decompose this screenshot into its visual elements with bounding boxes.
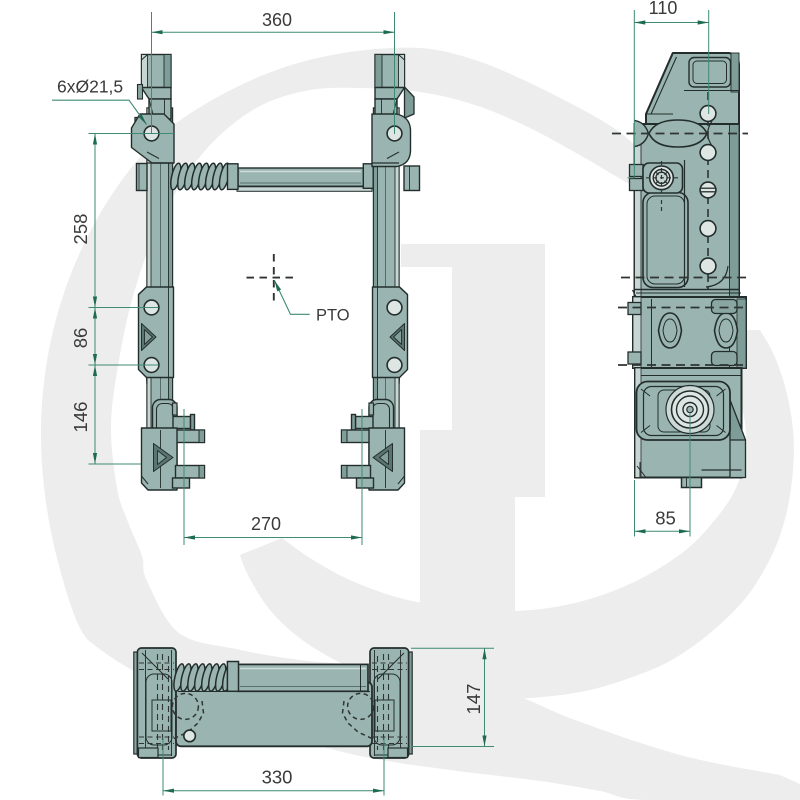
svg-text:85: 85	[655, 508, 676, 529]
svg-text:86: 86	[70, 328, 91, 349]
svg-text:330: 330	[262, 767, 293, 788]
svg-text:360: 360	[262, 10, 292, 30]
svg-text:110: 110	[649, 0, 678, 18]
svg-text:PTO: PTO	[316, 307, 350, 325]
svg-text:270: 270	[251, 514, 281, 534]
svg-text:146: 146	[70, 402, 91, 433]
svg-text:147: 147	[463, 684, 484, 715]
svg-text:258: 258	[70, 214, 91, 245]
svg-text:6xØ21,5: 6xØ21,5	[57, 77, 123, 97]
